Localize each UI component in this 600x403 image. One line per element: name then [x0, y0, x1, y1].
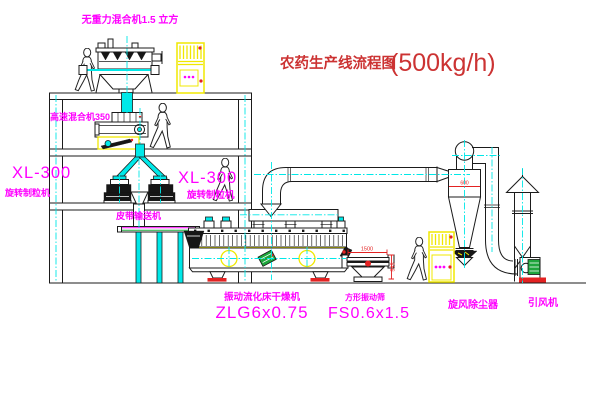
fluid-bed-dryer: [184, 210, 352, 282]
control-cabinet-top: [177, 43, 204, 93]
floor-slab-top: [50, 93, 252, 100]
diagram-title: 农药生产线流程图: [279, 54, 396, 72]
cad-flow-diagram: 无重力混合机1.5 立方 农药生产线流程图 (500kg/h) 高速混合机350…: [0, 0, 600, 403]
label-dryer-model: ZLG6x0.75: [215, 303, 308, 322]
sieve-motor: [365, 261, 371, 267]
floor-slab-mid: [50, 149, 252, 156]
label-belt-conveyor: 皮带输送机: [115, 210, 161, 221]
label-sieve-model: FS0.6x1.5: [328, 305, 410, 322]
conveyor-leg: [157, 232, 162, 283]
label-gravity-mixer: 无重力混合机1.5 立方: [81, 13, 179, 26]
label-granulator-left-model: XL-300: [12, 164, 71, 182]
label-granulator-right-model: XL-300: [178, 169, 237, 187]
dim-sieve-545: 545: [391, 262, 397, 271]
label-granulator-right-name: 旋转制粒机: [186, 189, 235, 201]
person-figure-2: [150, 103, 170, 148]
floor-slab-lower: [50, 203, 252, 210]
label-fan: 引风机: [528, 296, 558, 309]
dryer-foot-pad: [208, 278, 227, 282]
label-dryer-name: 振动流化床干燥机: [224, 291, 301, 303]
title-capacity: (500kg/h): [390, 49, 496, 77]
y-splitter-chute: [115, 157, 167, 178]
granulator-left: [104, 176, 131, 203]
dim-cyclone-600: 600: [460, 181, 469, 187]
granulator-right: [148, 176, 175, 203]
label-high-speed-mixer: 高速混合机350: [50, 111, 110, 122]
indicator-dot: [199, 79, 202, 82]
dryer-foot-pad: [311, 278, 330, 282]
induced-draft-fan: [519, 258, 546, 283]
drawing-canvas: 无重力混合机1.5 立方 农药生产线流程图 (500kg/h) 高速混合机350…: [0, 0, 600, 403]
granulator-collect-funnel: [131, 192, 148, 204]
conveyor-leg: [136, 232, 141, 283]
indicator-dot: [448, 265, 451, 268]
control-cabinet-bottom: [429, 232, 454, 282]
person-figure-4: [407, 237, 426, 280]
indicator-dot: [449, 235, 452, 238]
indicator-dot: [198, 46, 201, 49]
label-sieve-name: 方形振动筛: [345, 292, 385, 302]
label-cyclone: 旋风除尘器: [447, 298, 499, 311]
conveyor-leg: [178, 232, 183, 283]
label-granulator-left-name: 旋转制粒机: [4, 187, 50, 198]
dim-sieve-1500: 1500: [361, 247, 373, 253]
fan-base: [519, 278, 546, 283]
